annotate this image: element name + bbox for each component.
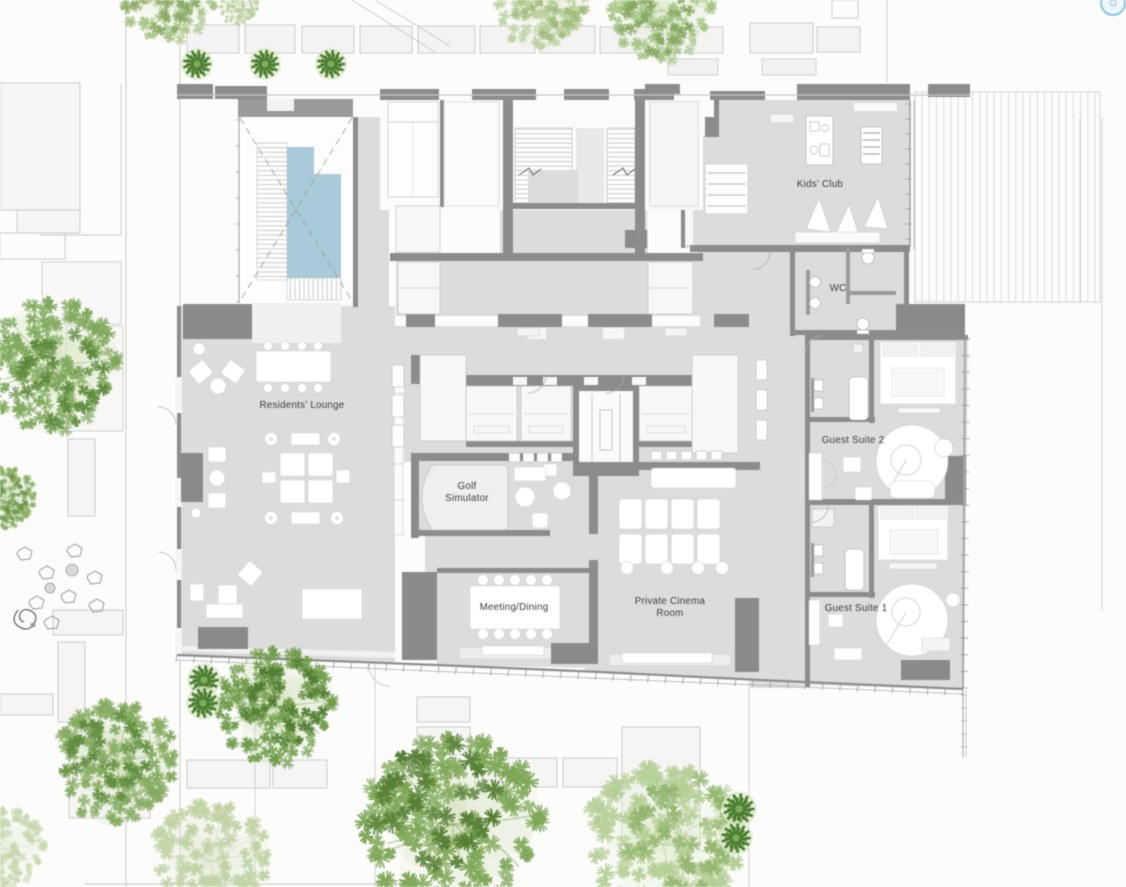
svg-text:Guest Suite 1: Guest Suite 1 (825, 603, 888, 614)
svg-text:Residents’ Lounge: Residents’ Lounge (259, 400, 344, 411)
svg-text:Private Cinema: Private Cinema (635, 596, 706, 607)
svg-text:Golf: Golf (458, 481, 477, 492)
svg-text:WC: WC (830, 283, 847, 294)
svg-text:Simulator: Simulator (445, 493, 489, 504)
svg-text:Room: Room (656, 608, 683, 619)
svg-text:Meeting/Dining: Meeting/Dining (480, 602, 549, 613)
svg-text:Guest Suite 2: Guest Suite 2 (822, 435, 885, 446)
svg-text:Kids’ Club: Kids’ Club (797, 179, 844, 190)
